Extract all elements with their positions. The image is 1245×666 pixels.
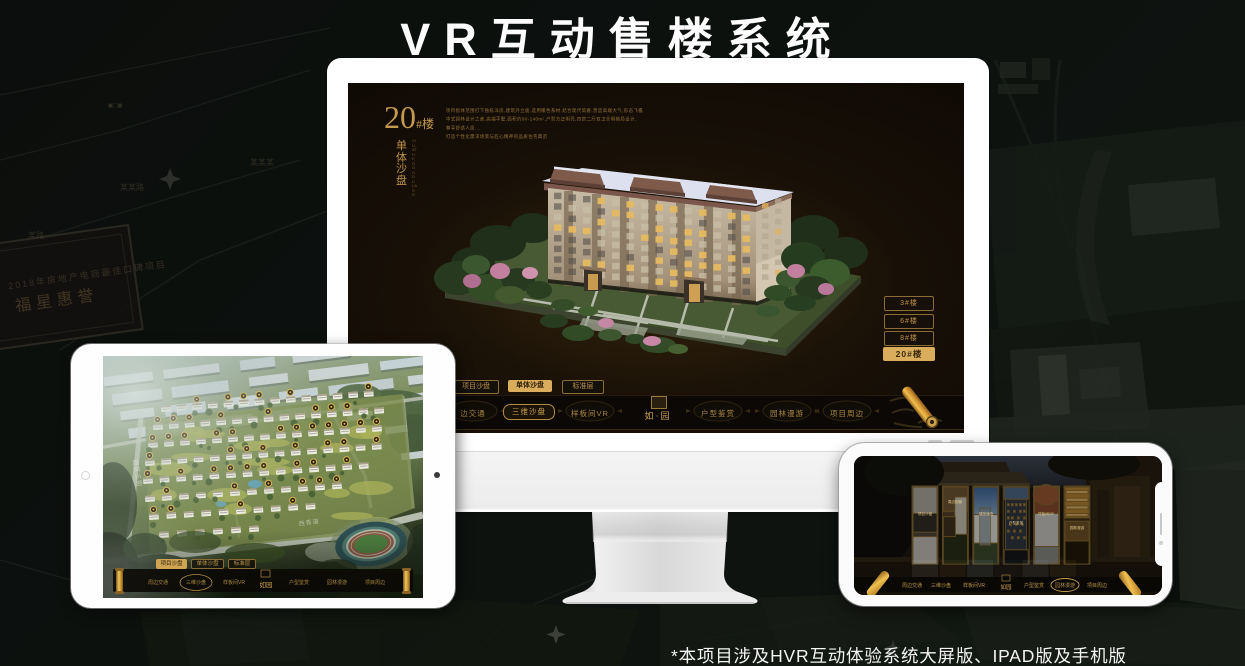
- svg-text:项目沙盘: 项目沙盘: [918, 511, 933, 516]
- svg-text:户型鉴赏: 户型鉴赏: [1009, 520, 1024, 525]
- svg-text:三维沙盘: 三维沙盘: [931, 582, 951, 589]
- svg-text:户型鉴赏: 户型鉴赏: [289, 579, 309, 586]
- svg-text:园林漫游: 园林漫游: [1070, 525, 1085, 530]
- svg-text:■□■: ■□■: [108, 101, 123, 110]
- svg-text:周边交通: 周边交通: [902, 582, 922, 589]
- svg-text:样板间VR: 样板间VR: [223, 579, 245, 586]
- svg-text:项目周边: 项目周边: [1087, 582, 1107, 589]
- svg-text:楼座速查: 楼座速查: [979, 511, 994, 516]
- svg-text:某路: 某路: [28, 230, 44, 240]
- svg-text:园林漫游: 园林漫游: [1055, 582, 1075, 589]
- svg-text:项目周边: 项目周边: [365, 579, 385, 586]
- svg-text:样板间VR: 样板间VR: [1038, 511, 1054, 516]
- svg-text:某某路: 某某路: [120, 182, 144, 192]
- svg-text:户型鉴赏: 户型鉴赏: [1024, 582, 1044, 589]
- svg-text:周边交通: 周边交通: [148, 579, 168, 586]
- svg-text:园林漫游: 园林漫游: [327, 579, 347, 586]
- svg-text:某某某: 某某某: [250, 158, 274, 167]
- svg-text:三维沙盘: 三维沙盘: [186, 579, 206, 586]
- svg-text:如园: 如园: [260, 580, 273, 589]
- svg-text:样板间VR: 样板间VR: [963, 582, 985, 589]
- svg-text:周边配套: 周边配套: [948, 499, 963, 504]
- svg-text:如园: 如园: [1000, 583, 1012, 591]
